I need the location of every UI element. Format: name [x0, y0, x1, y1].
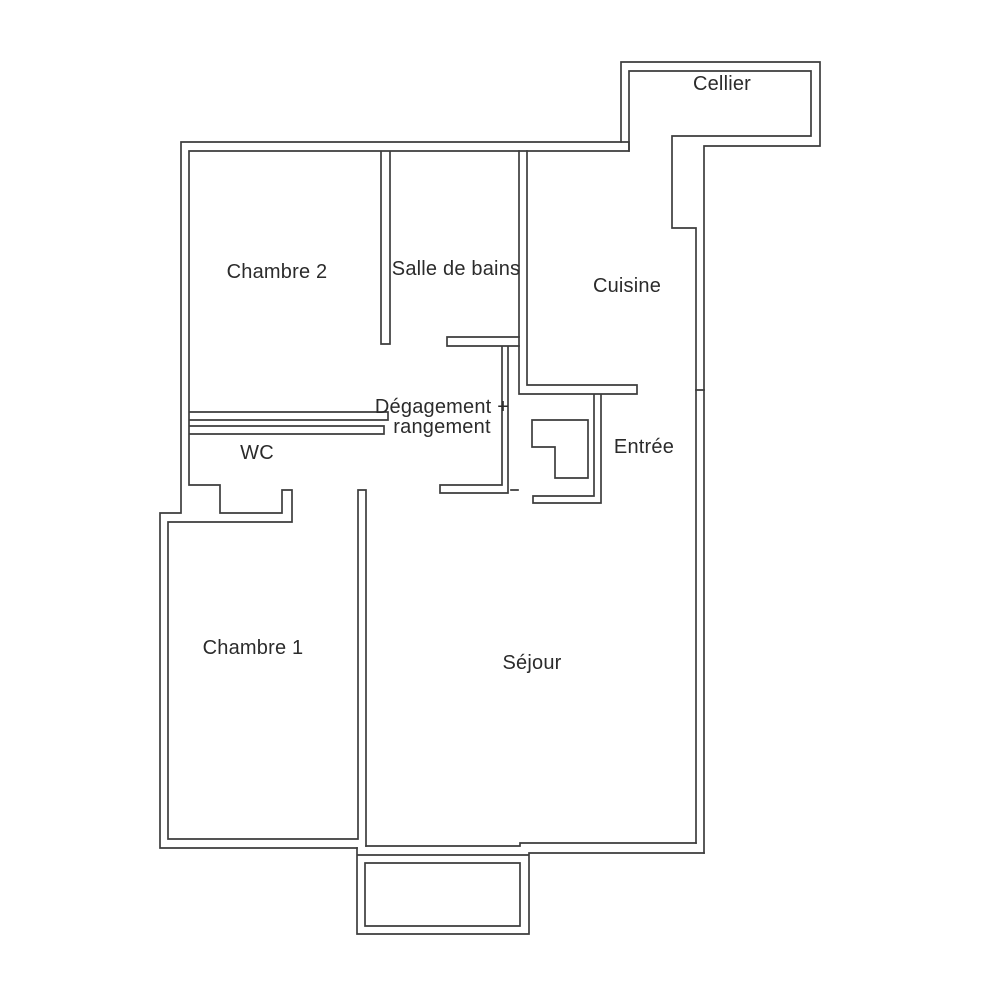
room-label-degagement-rangement: Dégagement + rangement [375, 397, 509, 437]
room-label-chambre-1: Chambre 1 [203, 638, 304, 658]
room-label-wc: WC [240, 443, 274, 463]
walls-sejour-balcony [357, 843, 704, 934]
room-label-entree: Entrée [614, 437, 674, 457]
degagement-line-1: Dégagement + [375, 397, 509, 417]
room-label-chambre-2: Chambre 2 [227, 262, 328, 282]
closet-outline [532, 420, 588, 478]
floor-plan: Cellier Chambre 2 Salle de bains Cuisine… [0, 0, 1000, 1000]
room-label-cellier: Cellier [693, 74, 751, 94]
room-label-cuisine: Cuisine [593, 276, 661, 296]
room-label-salle-de-bains: Salle de bains [392, 259, 520, 279]
degagement-line-2: rangement [375, 417, 509, 437]
room-label-sejour: Séjour [502, 653, 561, 673]
wall-junction-ticks [511, 390, 704, 490]
walls-left-wing [160, 142, 629, 848]
floor-plan-drawing [0, 0, 1000, 1000]
